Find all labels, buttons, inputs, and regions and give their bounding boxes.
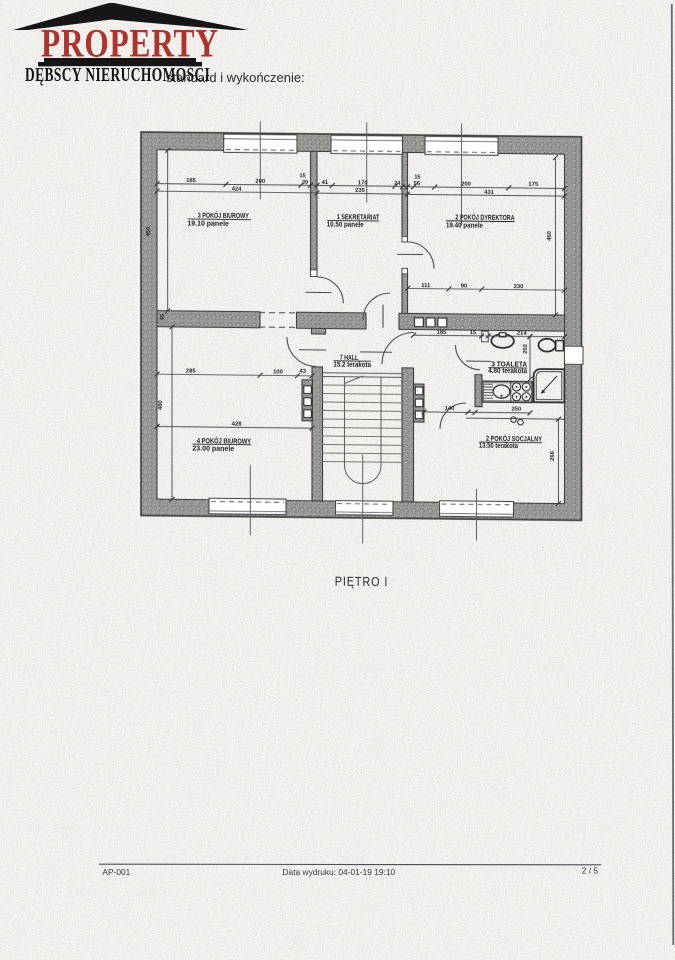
svg-text:13.50 terakota: 13.50 terakota <box>479 443 518 450</box>
svg-text:214: 214 <box>517 331 528 337</box>
svg-text:24: 24 <box>394 181 401 187</box>
svg-text:250: 250 <box>511 406 522 412</box>
svg-text:90: 90 <box>461 283 468 289</box>
svg-text:424: 424 <box>232 186 243 192</box>
svg-text:2 / 5: 2 / 5 <box>582 866 599 876</box>
svg-text:4.80 terakota: 4.80 terakota <box>488 368 527 375</box>
svg-text:170: 170 <box>358 180 369 186</box>
svg-text:111: 111 <box>421 283 431 289</box>
svg-text:19.10 panele: 19.10 panele <box>187 220 229 227</box>
svg-text:431: 431 <box>484 190 495 196</box>
svg-text:45: 45 <box>160 313 166 320</box>
svg-text:450: 450 <box>547 230 553 241</box>
svg-text:266: 266 <box>550 450 556 461</box>
svg-text:185: 185 <box>437 330 448 336</box>
svg-text:43: 43 <box>299 369 306 375</box>
svg-text:185: 185 <box>186 178 197 184</box>
svg-text:DĘBSCY NIERUCHOMOŚCI: DĘBSCY NIERUCHOMOŚCI <box>25 64 210 86</box>
svg-text:PIĘTRO I: PIĘTRO I <box>335 574 388 590</box>
svg-text:23.00 panele: 23.00 panele <box>192 446 234 453</box>
svg-text:19.40 panele: 19.40 panele <box>446 222 483 229</box>
svg-text:450: 450 <box>146 226 152 237</box>
svg-text:Data wydruku: 04-01-19 19:10: Data wydruku: 04-01-19 19:10 <box>283 867 396 877</box>
svg-text:56: 56 <box>414 181 421 187</box>
svg-text:428: 428 <box>232 421 243 427</box>
svg-text:39: 39 <box>302 180 308 186</box>
svg-text:100: 100 <box>273 370 284 376</box>
svg-text:480: 480 <box>158 400 164 411</box>
svg-text:200: 200 <box>255 179 266 185</box>
svg-text:175: 175 <box>528 182 539 188</box>
svg-text:41: 41 <box>322 180 329 186</box>
svg-text:15.2 terakota: 15.2 terakota <box>333 362 371 369</box>
svg-text:15: 15 <box>300 173 306 179</box>
svg-text:230: 230 <box>514 284 525 290</box>
svg-text:15: 15 <box>414 175 420 181</box>
svg-text:140: 140 <box>445 406 456 412</box>
svg-text:200: 200 <box>461 181 472 187</box>
svg-text:202: 202 <box>523 343 529 354</box>
svg-text:10.50 panele: 10.50 panele <box>327 222 364 229</box>
svg-text:AP-001: AP-001 <box>102 867 130 877</box>
svg-text:15: 15 <box>470 330 477 336</box>
svg-text:235: 235 <box>355 188 366 194</box>
svg-text:285: 285 <box>186 369 197 375</box>
